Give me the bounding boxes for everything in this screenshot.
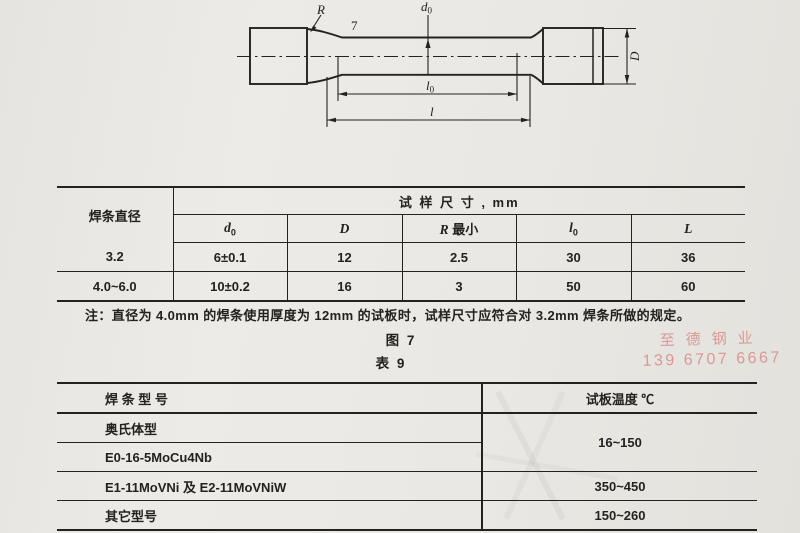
header-electrode-model: 焊 条 型 号 — [57, 383, 482, 413]
radius-label: R — [316, 2, 325, 17]
D-arrow-bottom — [625, 75, 630, 84]
cell-model: 奥氏体型 — [57, 413, 482, 443]
table-row: 3.2 6±0.1 12 2.5 30 36 — [57, 243, 745, 272]
cell-diameter: 3.2 — [57, 243, 173, 272]
col-header-D: D — [287, 215, 402, 243]
cell-temperature-merged: 16~150 — [482, 413, 757, 472]
d0-label: d0 — [421, 0, 433, 16]
cell-model: E0-16-5MoCu4Nb — [57, 443, 482, 472]
col-header-L: L — [631, 215, 745, 243]
specimen-drawing: d0 7 R l0 l D — [225, 0, 645, 140]
cell-l0: 50 — [516, 272, 631, 302]
corner-header: 焊条直径 — [57, 187, 173, 243]
cell-R: 2.5 — [402, 243, 516, 272]
specimen-dimensions-table: 焊条直径 试 样 尺 寸 , mm d0 D R 最小 l0 L 3.2 6±0… — [57, 186, 745, 302]
l-arrow-left — [327, 118, 336, 123]
cell-d0: 10±0.2 — [173, 272, 287, 302]
cell-model: E1-11MoVNi 及 E2-11MoVNiW — [57, 472, 482, 501]
cell-L: 60 — [631, 272, 745, 302]
cell-d0: 6±0.1 — [173, 243, 287, 272]
col-header-d0: d0 — [173, 215, 287, 243]
span-header: 试 样 尺 寸 , mm — [173, 187, 745, 215]
cell-R: 3 — [402, 272, 516, 302]
electrode-temperature-table: 焊 条 型 号 试板温度 ℃ 奥氏体型 16~150 E0-16-5MoCu4N… — [57, 382, 757, 531]
table-row: E1-11MoVNi 及 E2-11MoVNiW 350~450 — [57, 472, 757, 501]
gauge-bottom-edge — [307, 75, 543, 84]
scanned-document-page: d0 7 R l0 l D — [0, 0, 800, 533]
col-header-l0: l0 — [516, 215, 631, 243]
l-arrow-right — [521, 118, 530, 123]
l-label: l — [430, 104, 434, 119]
col-header-R-min: R 最小 — [402, 215, 516, 243]
cell-l0: 30 — [516, 243, 631, 272]
cell-L: 36 — [631, 243, 745, 272]
gauge-number-label: 7 — [351, 18, 358, 33]
vendor-watermark: 至德钢业 139 6707 6667 — [627, 329, 798, 372]
d0-arrow — [425, 39, 430, 48]
table-row: 其它型号 150~260 — [57, 501, 757, 531]
table-row: 4.0~6.0 10±0.2 16 3 50 60 — [57, 272, 745, 302]
gauge-top-edge — [307, 29, 543, 38]
cell-diameter: 4.0~6.0 — [57, 272, 173, 302]
table-row: 奥氏体型 16~150 — [57, 413, 757, 443]
cell-D: 16 — [287, 272, 402, 302]
cell-model: 其它型号 — [57, 501, 482, 531]
l0-label: l0 — [426, 78, 435, 95]
D-arrow-top — [625, 29, 630, 38]
cell-temperature: 150~260 — [482, 501, 757, 531]
header-plate-temperature: 试板温度 ℃ — [482, 383, 757, 413]
table-note: 注：直径为 4.0mm 的焊条使用厚度为 12mm 的试板时，试样尺寸应符合对 … — [85, 305, 775, 324]
D-label: D — [627, 51, 642, 62]
cell-D: 12 — [287, 243, 402, 272]
watermark-phone: 139 6707 6667 — [627, 348, 797, 372]
l0-arrow-right — [508, 92, 517, 97]
cell-temperature: 350~450 — [482, 472, 757, 501]
l0-arrow-left — [338, 92, 347, 97]
